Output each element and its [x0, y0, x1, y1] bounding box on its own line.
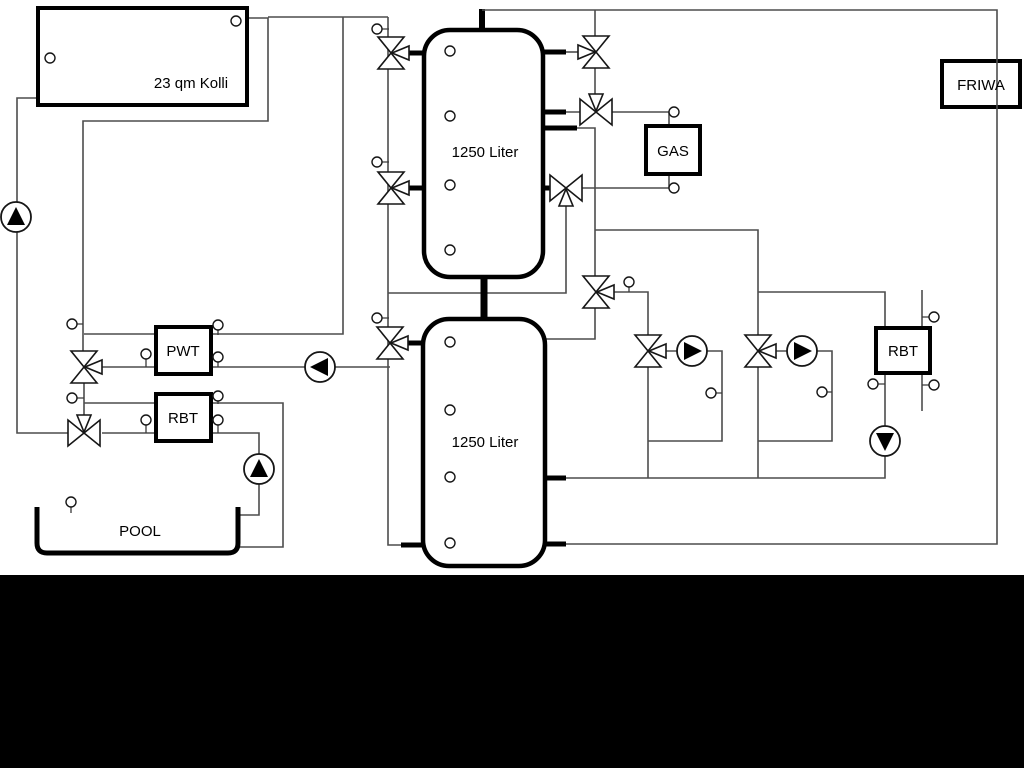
sensor-rbt-inlet: [67, 393, 77, 403]
solar-collector-label: 23 qm Kolli: [154, 75, 228, 92]
sensor-tank2: [445, 538, 455, 548]
sensor-tank1: [445, 245, 455, 255]
pump-circuit2: [787, 336, 817, 366]
sensor-gas-flow: [669, 107, 679, 117]
sensor-tank1: [445, 46, 455, 56]
sensor-tank2: [445, 472, 455, 482]
sensor-valve-column: [372, 313, 382, 323]
sensor-pwt-right-lower: [213, 352, 223, 362]
sensor-pwt-inlet: [67, 319, 77, 329]
pump-pool: [244, 454, 274, 484]
schematic-canvas: 23 qm Kolli 1250 Liter 1250 Liter PWT RB…: [0, 0, 1024, 768]
sensor-tank2: [445, 337, 455, 347]
sensor-valve-column: [372, 157, 382, 167]
friwa-label: FRIWA: [957, 77, 1005, 94]
sensor-heating-supply: [624, 277, 634, 287]
pump-rbt-heating: [870, 426, 900, 456]
pump-solar: [1, 202, 31, 232]
sensor-circuit1-flow: [706, 388, 716, 398]
sensor-collector-top: [231, 16, 241, 26]
pump-circuit1: [677, 336, 707, 366]
sensor-circuit2-flow: [817, 387, 827, 397]
buffer-tank-1-label: 1250 Liter: [452, 144, 519, 161]
gas-label: GAS: [657, 143, 689, 160]
sensor-riser-lower: [929, 380, 939, 390]
sensor-valve-column: [372, 24, 382, 34]
sensor-rbt-left: [141, 415, 151, 425]
hydraulic-schematic: 23 qm Kolli 1250 Liter 1250 Liter PWT RB…: [0, 0, 1024, 768]
pump-pwt: [305, 352, 335, 382]
rbt-pool-label: RBT: [168, 410, 198, 427]
sensor-tank1: [445, 111, 455, 121]
sensor-collector-left: [45, 53, 55, 63]
sensor-pwt-right-upper: [213, 320, 223, 330]
sensor-rbt-right-upper: [213, 391, 223, 401]
pool-label: POOL: [119, 523, 161, 540]
sensor-rbt-heating-return: [868, 379, 878, 389]
sensor-rbt-right-lower: [213, 415, 223, 425]
footer-black-bar: [0, 575, 1024, 768]
rbt-heating-label: RBT: [888, 343, 918, 360]
sensor-pwt-left: [141, 349, 151, 359]
sensor-riser-upper: [929, 312, 939, 322]
sensor-tank1: [445, 180, 455, 190]
sensor-gas-return: [669, 183, 679, 193]
sensor-tank2: [445, 405, 455, 415]
pwt-label: PWT: [166, 343, 199, 360]
sensor-pool: [66, 497, 76, 507]
buffer-tank-2-label: 1250 Liter: [452, 434, 519, 451]
